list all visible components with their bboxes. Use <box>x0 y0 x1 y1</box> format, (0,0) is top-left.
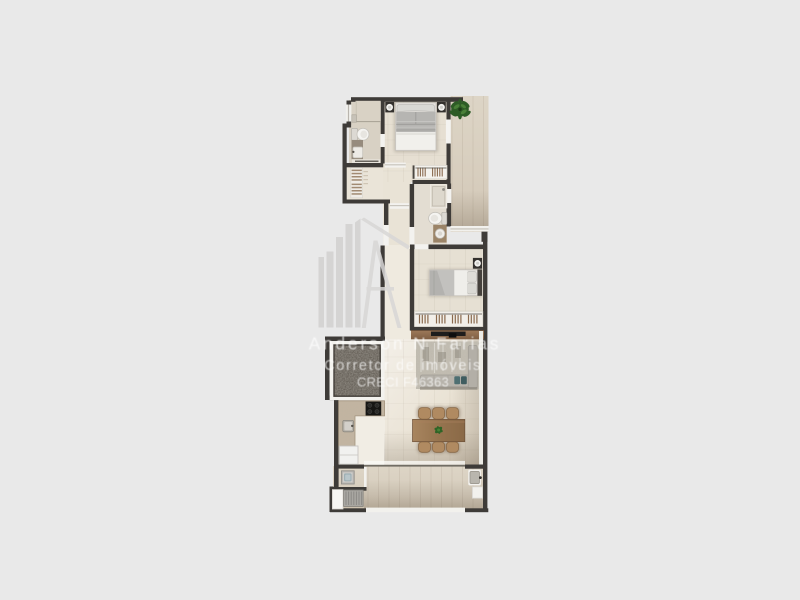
svg-text:Corretor de imóveis: Corretor de imóveis <box>324 358 482 374</box>
svg-text:CRECI F46363: CRECI F46363 <box>357 374 449 389</box>
svg-text:Anderson N Farias: Anderson N Farias <box>309 333 502 353</box>
